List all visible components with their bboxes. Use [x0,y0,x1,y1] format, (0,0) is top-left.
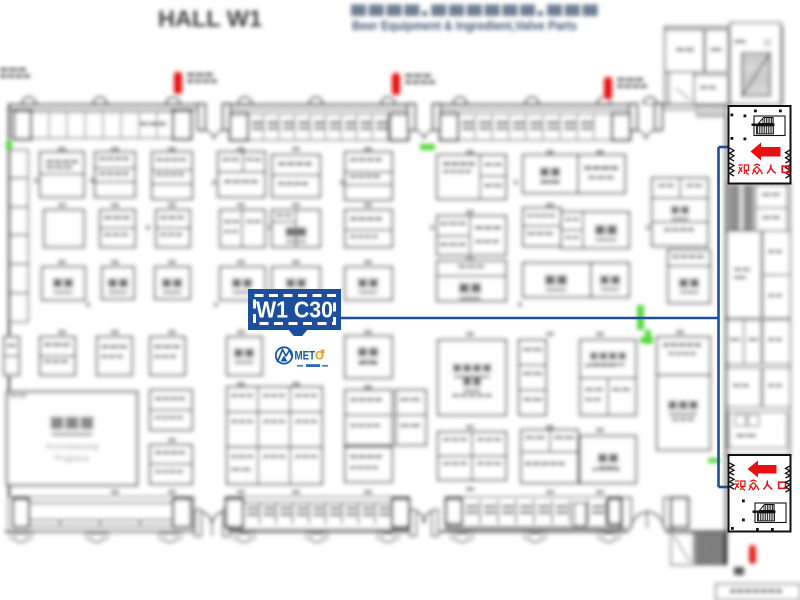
svg-text:W1 C30: W1 C30 [256,297,333,323]
svg-text:Programs: Programs [55,454,90,463]
svg-text:MET: MET [295,351,316,363]
svg-text:Accompanying: Accompanying [46,442,98,451]
svg-text:HALL W1: HALL W1 [158,6,262,32]
svg-text:Beer Equipment & Ingredient,Va: Beer Equipment & Ingredient,Valve Parts [352,19,577,33]
